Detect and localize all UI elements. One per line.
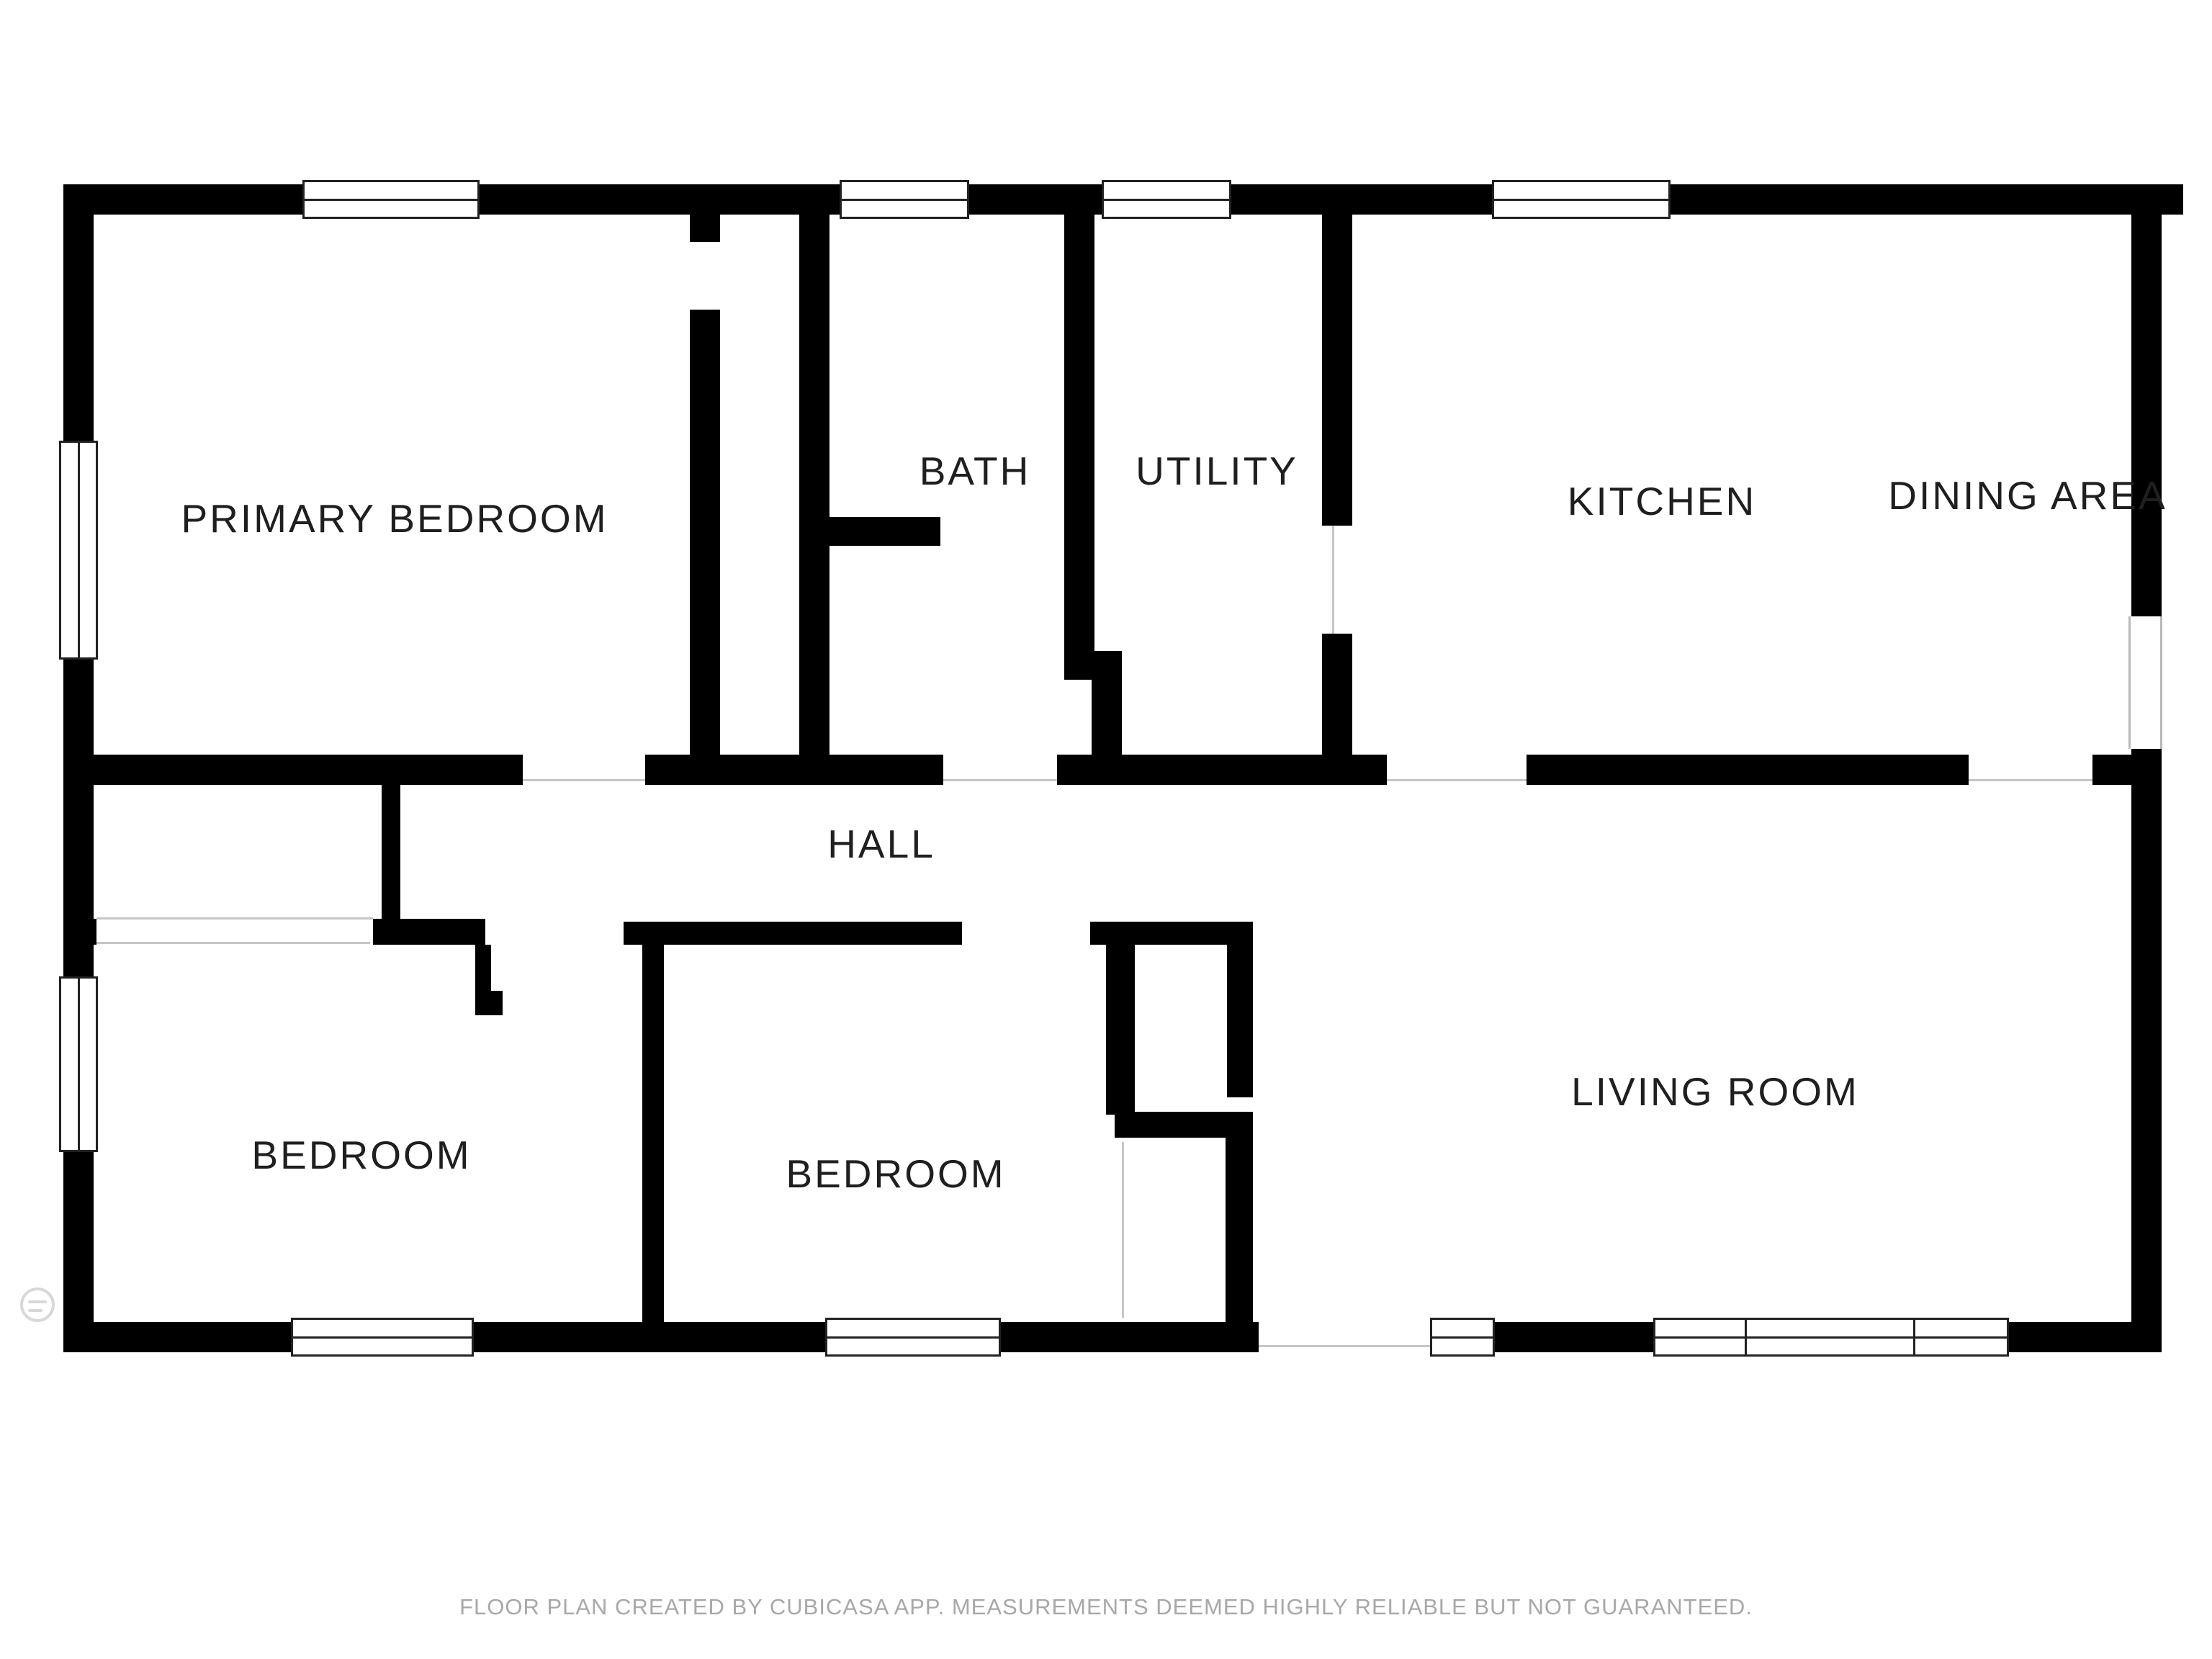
window-glass-line bbox=[1104, 199, 1229, 201]
wall bbox=[1527, 755, 1969, 785]
doorway-threshold-line bbox=[1332, 526, 1334, 634]
window bbox=[291, 1318, 474, 1357]
window-mullion bbox=[1913, 1320, 1915, 1354]
footer-disclaimer: FLOOR PLAN CREATED BY CUBICASA APP. MEAS… bbox=[459, 1594, 1753, 1620]
doorway-threshold-line bbox=[943, 779, 1057, 781]
wall bbox=[2131, 184, 2162, 1352]
wall bbox=[1115, 1112, 1253, 1138]
room-label-living-room: LIVING ROOM bbox=[1571, 1069, 1859, 1115]
wall bbox=[690, 215, 720, 242]
wall bbox=[1227, 945, 1253, 1097]
window bbox=[840, 180, 969, 219]
cubicasa-logo bbox=[20, 1287, 55, 1322]
window bbox=[302, 180, 480, 219]
closet-front-line bbox=[96, 942, 370, 944]
window-glass-line bbox=[842, 199, 967, 201]
patio-door-glass-line bbox=[2160, 616, 2162, 749]
wall bbox=[1090, 922, 1253, 945]
wall bbox=[63, 755, 523, 785]
window bbox=[1102, 180, 1231, 219]
patio-door-glass-line bbox=[2128, 616, 2131, 749]
window bbox=[59, 976, 98, 1152]
closet-front-line bbox=[1122, 1142, 1124, 1318]
wall bbox=[382, 785, 400, 919]
wall bbox=[63, 919, 96, 945]
room-label-bedroom-left: BEDROOM bbox=[251, 1132, 471, 1178]
window bbox=[59, 441, 98, 660]
window-glass-line bbox=[305, 199, 477, 201]
wall bbox=[645, 755, 943, 785]
wall bbox=[690, 310, 720, 785]
doorway-opening bbox=[1259, 1322, 1433, 1352]
wall bbox=[624, 922, 962, 945]
window bbox=[1653, 1318, 2009, 1357]
room-label-primary-bedroom: PRIMARY BEDROOM bbox=[181, 495, 608, 541]
closet-front-line bbox=[96, 917, 373, 920]
wall bbox=[799, 215, 829, 785]
window-glass-line bbox=[827, 1336, 999, 1339]
wall bbox=[2092, 755, 2133, 785]
room-label-hall: HALL bbox=[827, 821, 935, 867]
window-glass-line bbox=[78, 979, 80, 1150]
wall bbox=[1226, 1138, 1253, 1322]
window-glass-line bbox=[1432, 1336, 1493, 1339]
window-glass-line bbox=[1655, 1336, 2007, 1339]
floor-edge-line bbox=[1259, 1345, 1433, 1347]
window-glass-line bbox=[293, 1336, 472, 1339]
room-label-dining-area: DINING AREA bbox=[1888, 472, 2167, 518]
wall bbox=[642, 942, 664, 1352]
window bbox=[825, 1318, 1001, 1357]
wall bbox=[475, 945, 491, 1015]
window-glass-line bbox=[78, 443, 80, 657]
room-label-kitchen: KITCHEN bbox=[1568, 478, 1756, 524]
wall bbox=[1064, 651, 1122, 680]
floor-plan-canvas: PRIMARY BEDROOM BATH UTILITY KITCHEN DIN… bbox=[0, 0, 2212, 1659]
window bbox=[1492, 180, 1671, 219]
window-mullion bbox=[1745, 1320, 1747, 1354]
doorway-threshold-line bbox=[523, 779, 645, 781]
wall bbox=[373, 919, 485, 945]
wall bbox=[799, 517, 940, 546]
room-label-utility: UTILITY bbox=[1136, 448, 1298, 494]
room-label-bath: BATH bbox=[920, 448, 1031, 494]
wall bbox=[1057, 755, 1387, 785]
window-glass-line bbox=[1494, 199, 1668, 201]
room-label-bedroom-middle: BEDROOM bbox=[786, 1151, 1005, 1197]
wall bbox=[1064, 215, 1094, 651]
window bbox=[1430, 1318, 1495, 1357]
doorway-threshold-line bbox=[1387, 779, 1527, 781]
doorway-threshold-line bbox=[1969, 779, 2092, 781]
wall bbox=[1322, 215, 1352, 526]
wall bbox=[491, 991, 503, 1015]
wall bbox=[1106, 945, 1135, 1115]
